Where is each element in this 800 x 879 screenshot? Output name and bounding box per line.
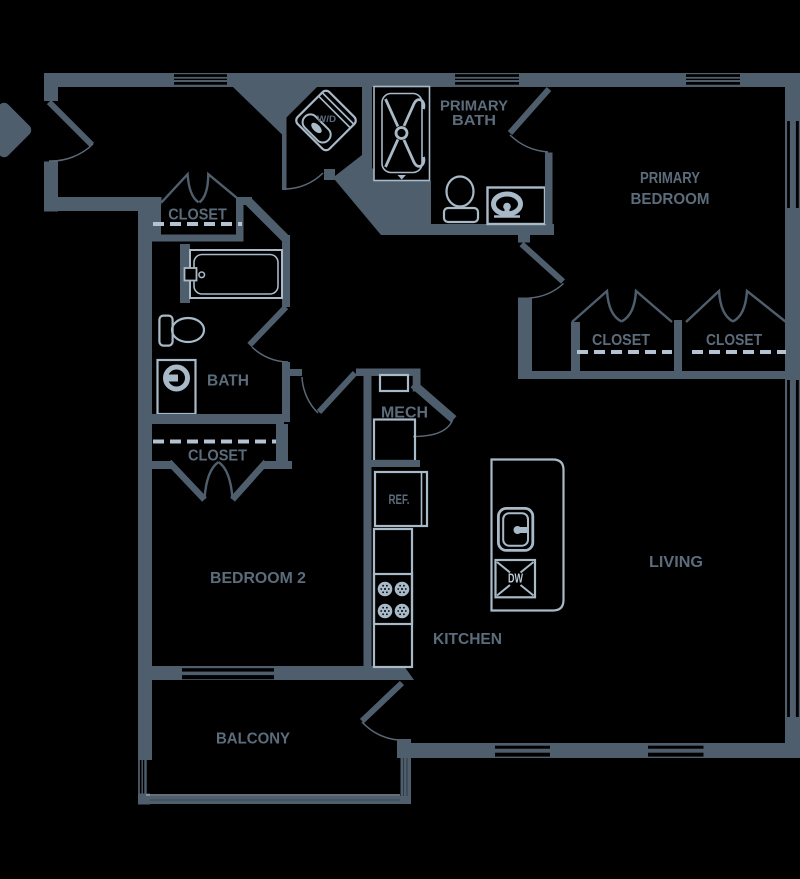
- svg-text:CLOSET: CLOSET: [592, 332, 650, 349]
- svg-text:BEDROOM 2: BEDROOM 2: [210, 570, 306, 587]
- svg-text:BATH: BATH: [452, 112, 496, 129]
- svg-text:PRIMARY: PRIMARY: [640, 170, 700, 187]
- svg-text:LIVING: LIVING: [649, 554, 703, 571]
- svg-text:BATH: BATH: [207, 373, 249, 390]
- svg-text:REF.: REF.: [389, 492, 410, 507]
- svg-text:W/D: W/D: [317, 114, 337, 124]
- svg-text:BALCONY: BALCONY: [216, 731, 290, 748]
- svg-text:BEDROOM: BEDROOM: [631, 191, 710, 208]
- svg-text:CLOSET: CLOSET: [706, 332, 762, 349]
- svg-text:DW: DW: [508, 572, 523, 586]
- svg-text:KITCHEN: KITCHEN: [433, 631, 502, 648]
- svg-text:CLOSET: CLOSET: [168, 207, 227, 224]
